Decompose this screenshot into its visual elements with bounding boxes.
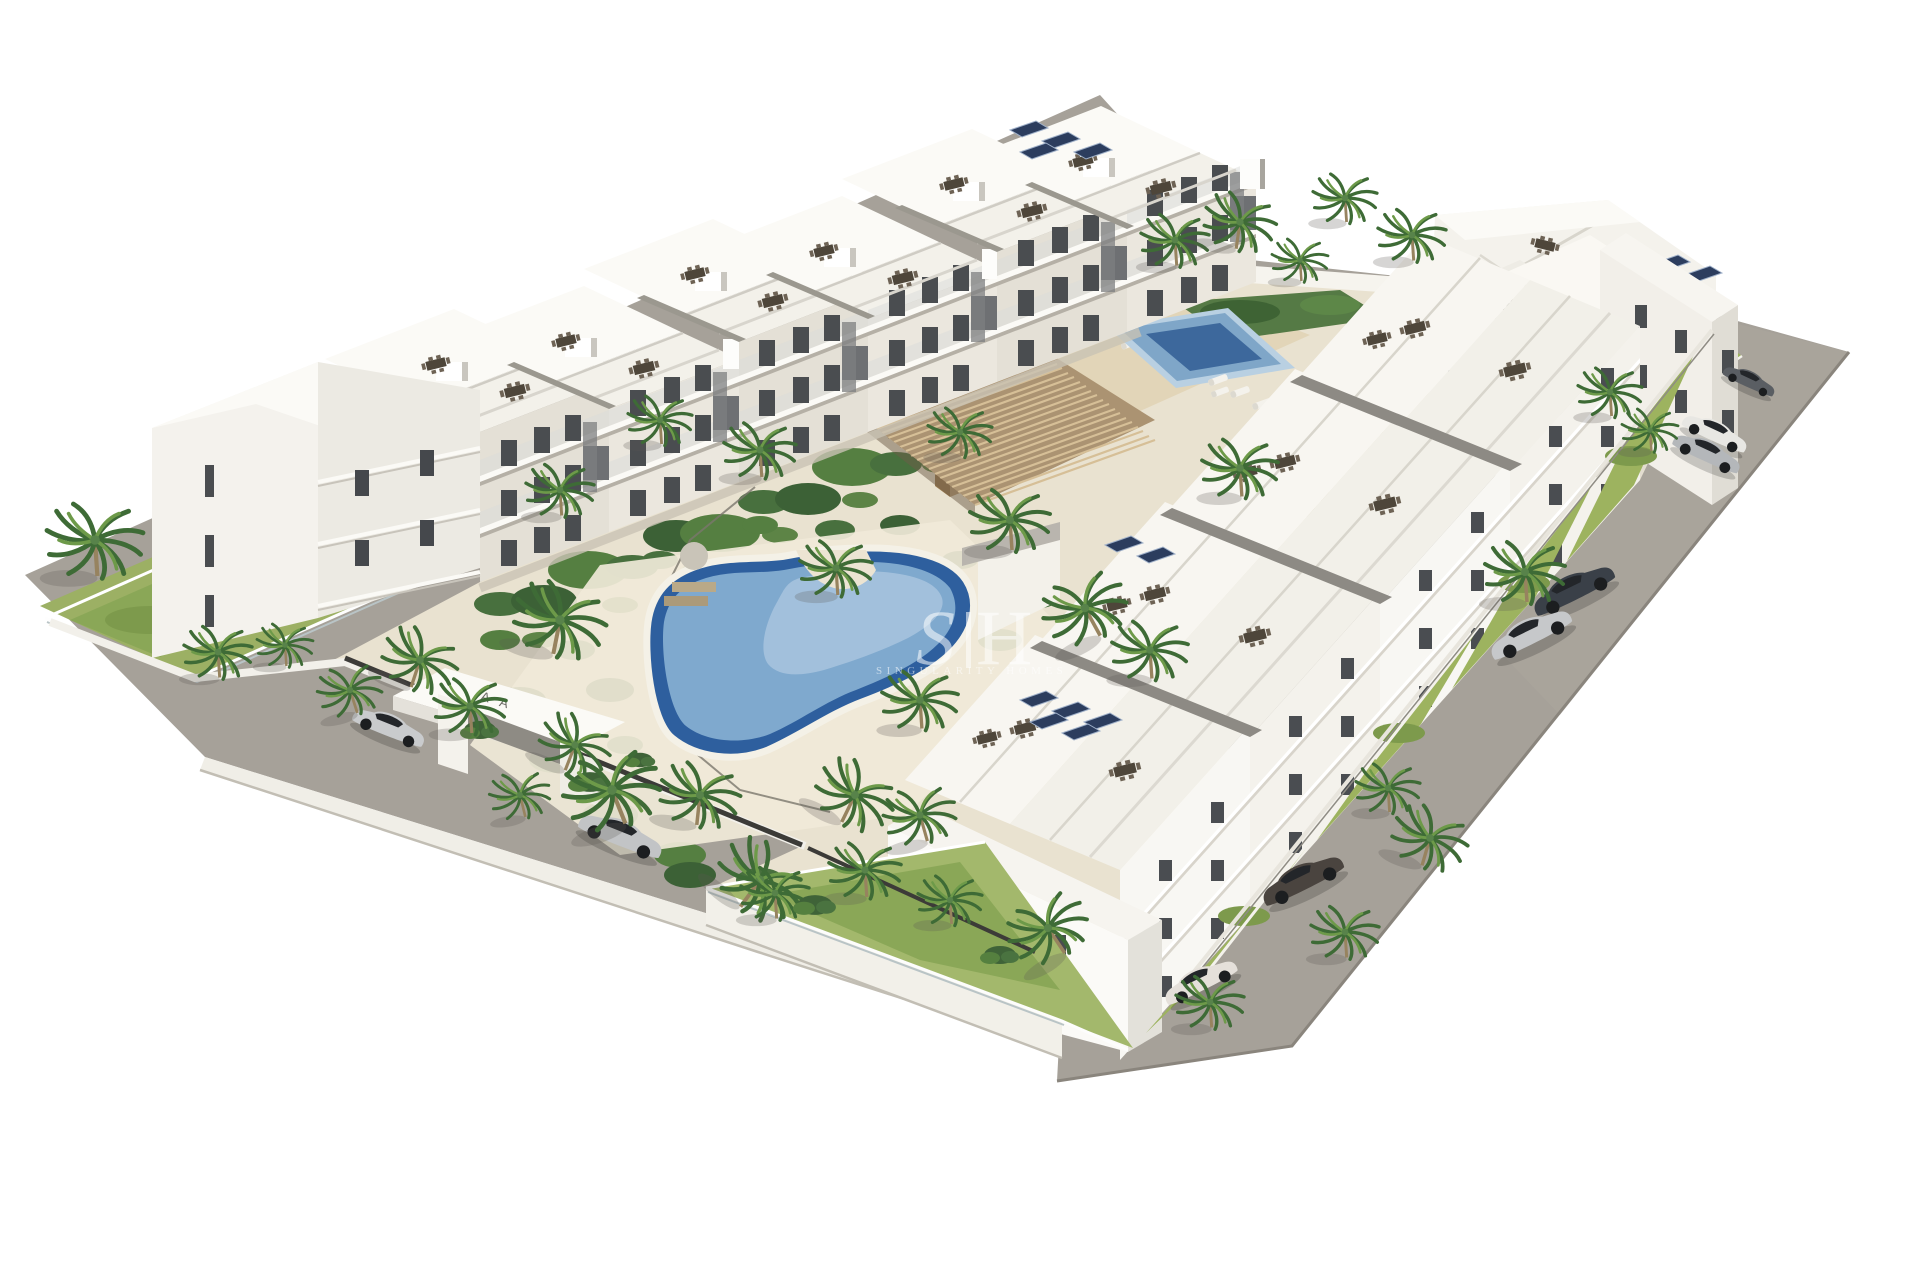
svg-text:SINGULARITY HOMES: SINGULARITY HOMES — [876, 665, 1067, 677]
